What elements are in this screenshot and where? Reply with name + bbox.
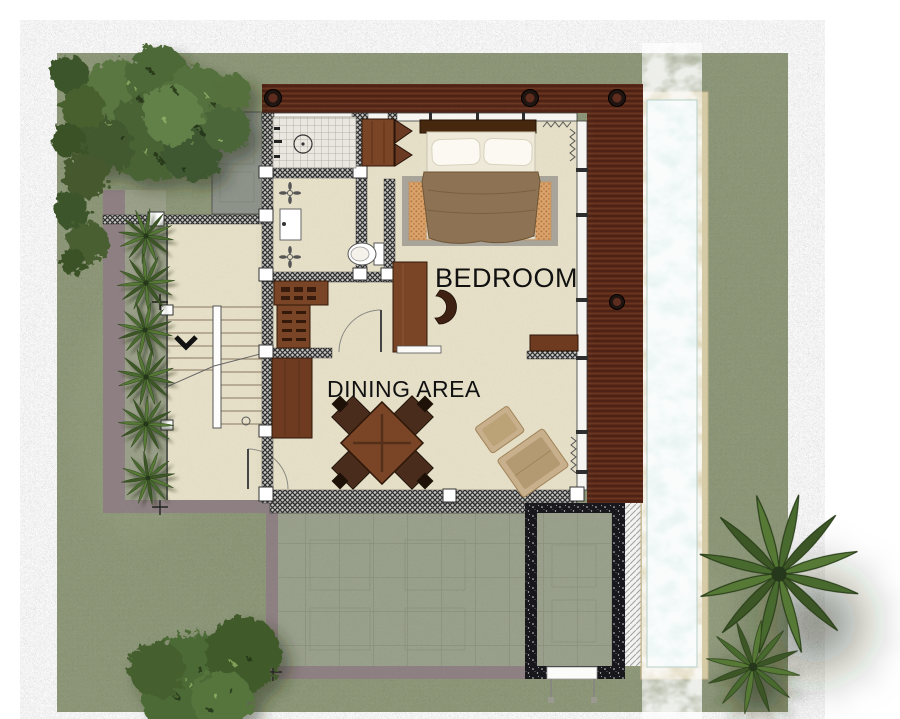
floor-plan-drawing: BEDROOM DINING AREA	[0, 0, 900, 719]
lower-terrace	[270, 503, 527, 666]
kitchen-counter	[274, 281, 328, 305]
pillow	[484, 138, 533, 166]
shower-area	[273, 117, 356, 168]
wardrobe	[362, 119, 394, 166]
deck-right	[587, 113, 643, 503]
media-shelf	[530, 335, 578, 351]
bedroom-label: BEDROOM	[435, 263, 578, 293]
floor-plan-canvas: BEDROOM DINING AREA	[0, 0, 900, 719]
window-band-east	[577, 121, 587, 490]
deck-top	[262, 84, 643, 113]
headboard	[420, 120, 536, 133]
dining-area-label: DINING AREA	[327, 376, 481, 402]
desk-shelf	[397, 346, 441, 353]
toilet-icon	[348, 243, 384, 265]
dining-set	[332, 396, 434, 490]
drainage-strip	[625, 503, 641, 666]
pillow	[432, 138, 481, 166]
stair-stringer	[213, 306, 221, 428]
bed-blanket	[422, 172, 540, 243]
pool	[641, 92, 708, 679]
terrace-wall	[270, 503, 527, 513]
step-opening	[547, 667, 597, 679]
stone-court	[525, 503, 641, 703]
sideboard	[272, 358, 312, 438]
